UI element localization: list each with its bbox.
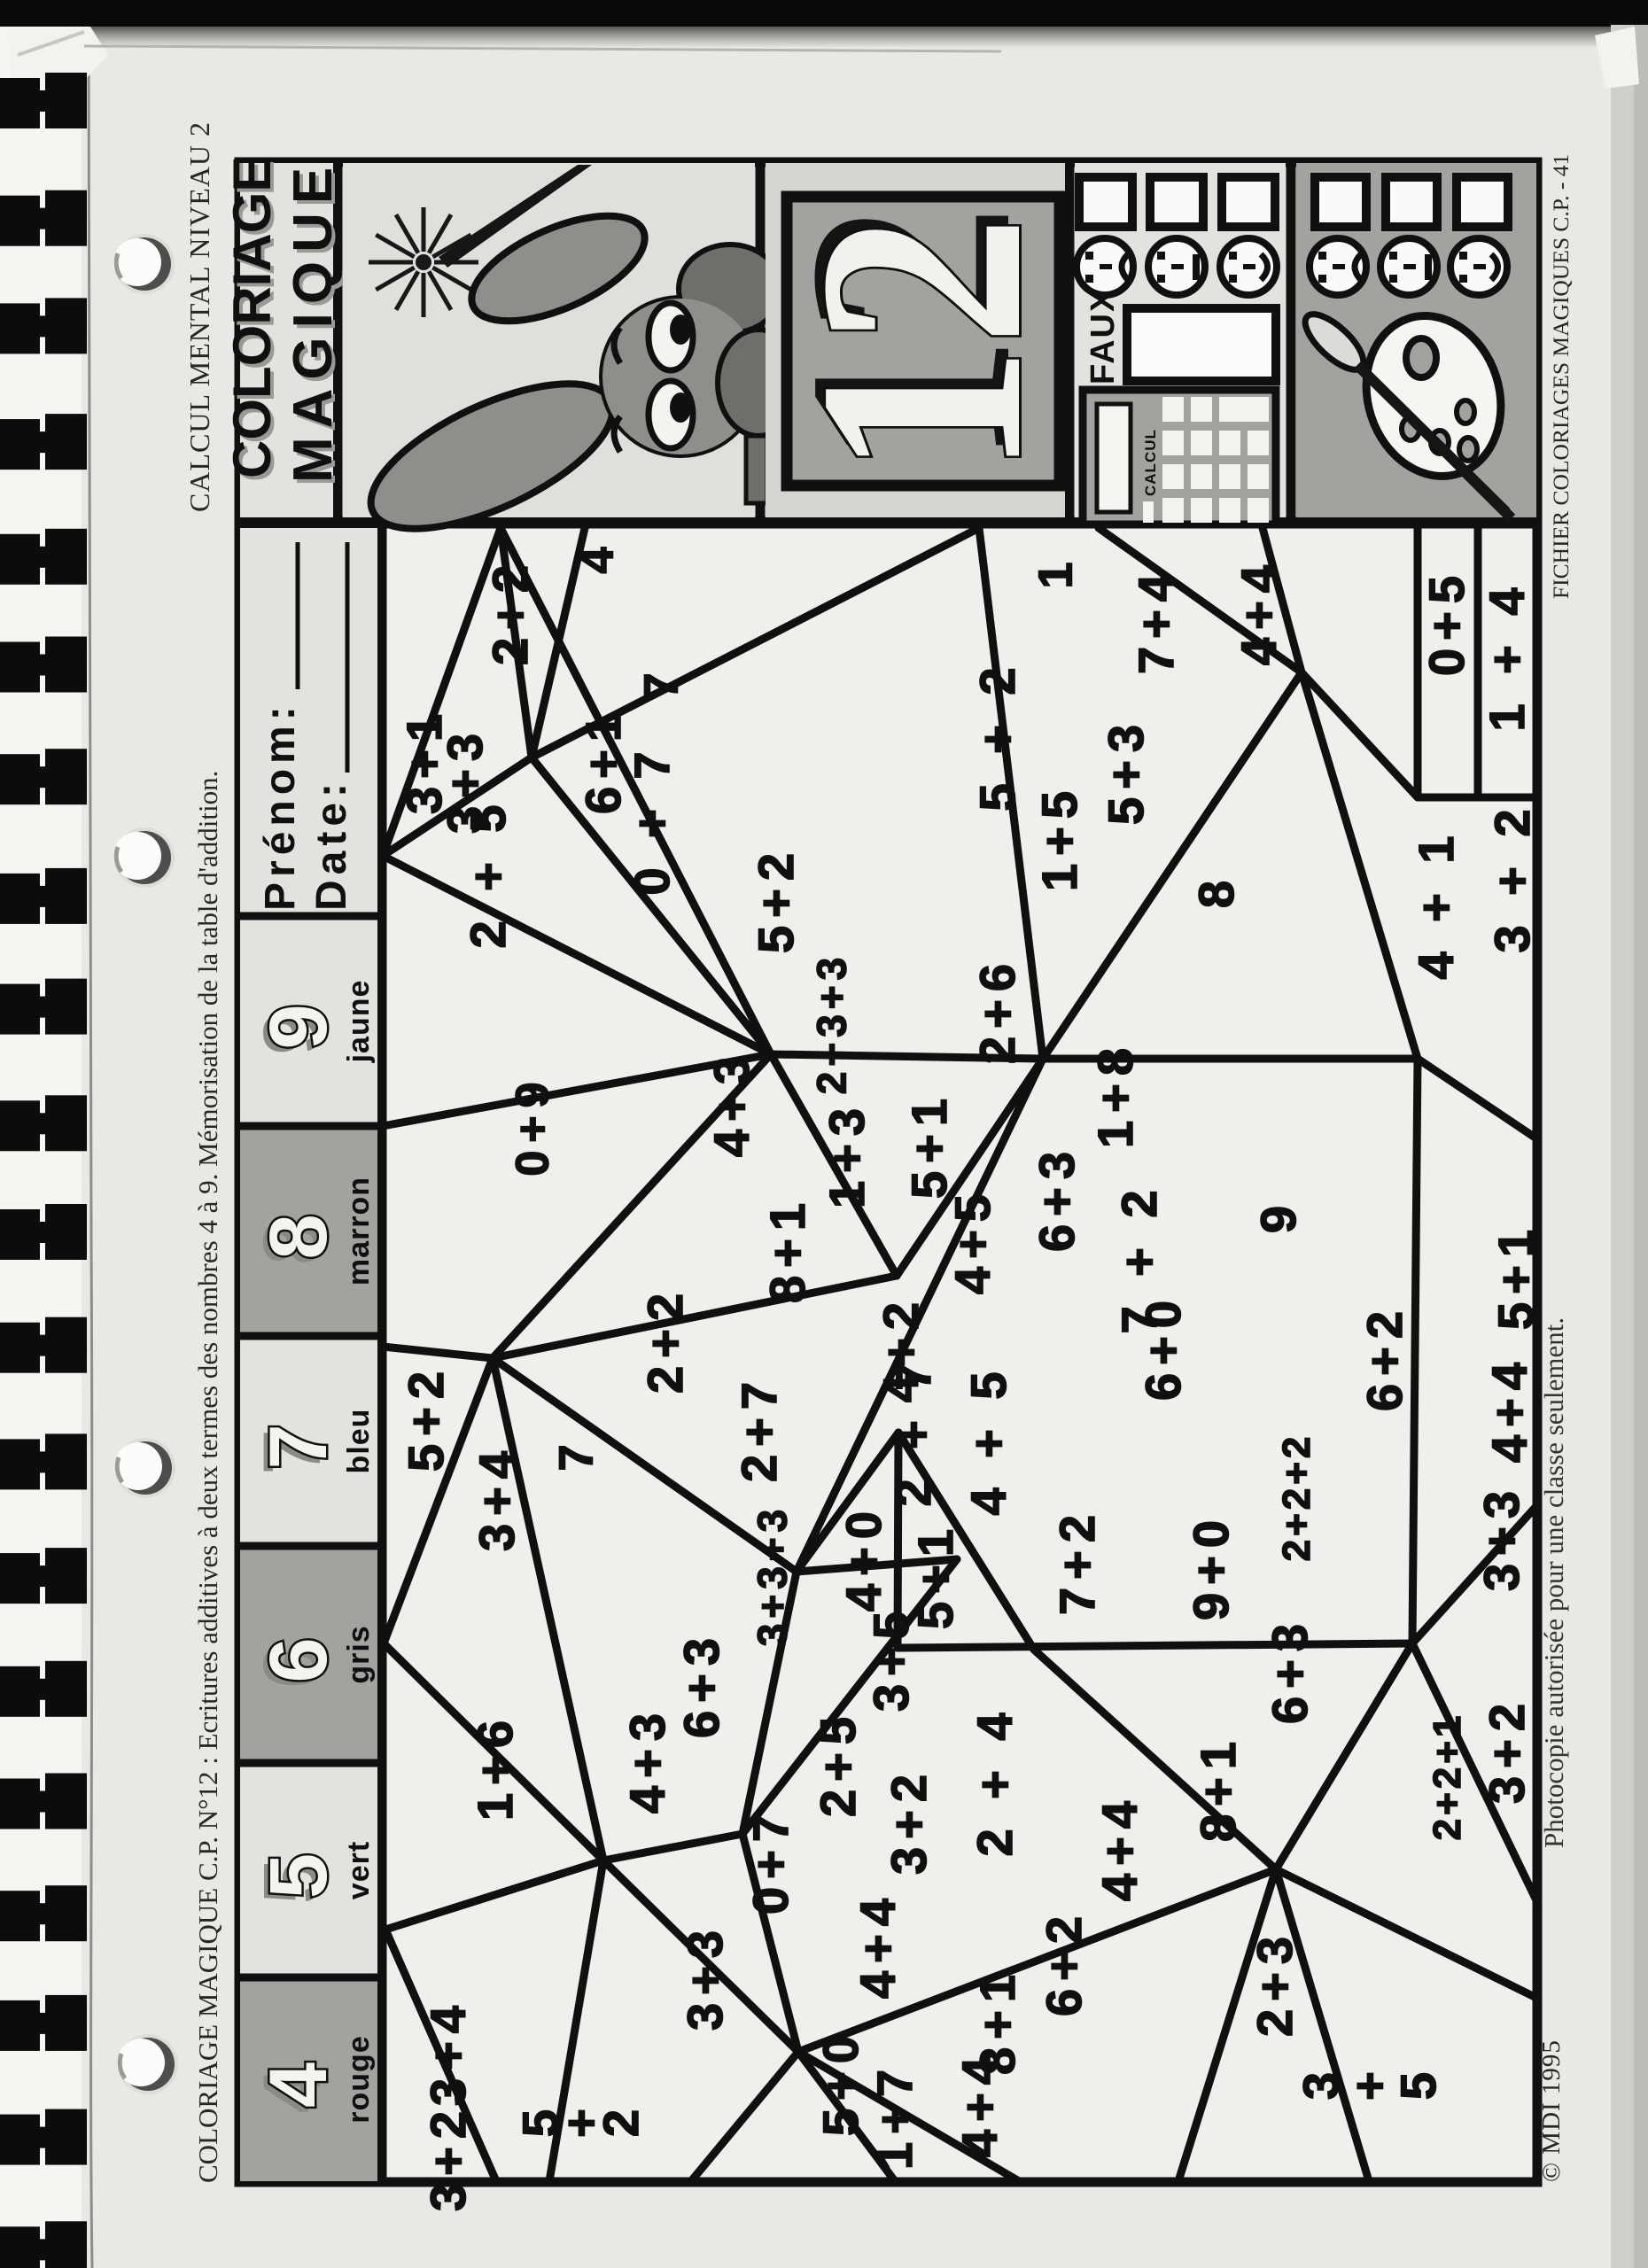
svg-text:CALCUL: CALCUL	[1142, 429, 1159, 496]
svg-text:9+0: 9+0	[1183, 1512, 1239, 1620]
svg-text:5+2: 5+2	[398, 1363, 454, 1472]
svg-text:7: 7	[634, 664, 688, 699]
svg-text:3 + 2: 3 + 2	[1484, 801, 1540, 952]
svg-text:COLORIAGE MAGIQUE C.P. N°12 :: COLORIAGE MAGIQUE C.P. N°12 : Ecritures …	[192, 771, 223, 2183]
svg-text:5+0: 5+0	[812, 2028, 868, 2136]
svg-text:8+1: 8+1	[969, 1967, 1025, 2075]
svg-text:6+3: 6+3	[673, 1630, 729, 1738]
svg-text:COLORIAGE: COLORIAGE	[222, 157, 282, 478]
svg-text:2+2+2: 2+2+2	[1275, 1433, 1318, 1562]
svg-text:3+2: 3+2	[881, 1767, 937, 1875]
svg-text:6+3: 6+3	[1029, 1144, 1084, 1252]
svg-text:1+8: 1+8	[1087, 1040, 1143, 1148]
svg-text:2+3: 2+3	[1247, 1929, 1302, 2037]
svg-text:12: 12	[759, 215, 1083, 477]
svg-text:2 + 4: 2 + 4	[967, 1705, 1022, 1856]
svg-text:3+3: 3+3	[1473, 1483, 1529, 1591]
svg-text:rouge: rouge	[342, 2035, 376, 2123]
svg-text:3+2: 3+2	[1479, 1696, 1535, 1804]
svg-text:4+4: 4+4	[1092, 1793, 1147, 1901]
svg-text:8+1: 8+1	[1190, 1734, 1246, 1842]
svg-text:3: 3	[1293, 2064, 1349, 2100]
svg-text:2+7: 2+7	[731, 1374, 787, 1482]
svg-text:4+4: 4+4	[1231, 557, 1287, 665]
svg-text:FAUX: FAUX	[1084, 288, 1122, 384]
svg-text:9: 9	[1250, 1198, 1306, 1233]
svg-text:5+1: 5+1	[901, 1091, 957, 1199]
svg-text:MAGIQUE: MAGIQUE	[283, 159, 344, 483]
svg-text:2 + 5: 2 + 5	[460, 796, 516, 948]
svg-text:4+2: 4+2	[873, 1294, 929, 1402]
svg-text:4: 4	[253, 2062, 344, 2108]
svg-text:CALCUL MENTAL NIVEAU 2: CALCUL MENTAL NIVEAU 2	[183, 121, 215, 512]
svg-text:4: 4	[570, 539, 623, 573]
svg-text:7+4: 7+4	[1128, 566, 1184, 674]
svg-text:6+2: 6+2	[1356, 1303, 1412, 1411]
svg-text:4 + 1: 4 + 1	[1408, 827, 1464, 979]
svg-text:© MDI 1995: © MDI 1995	[1537, 2039, 1566, 2182]
svg-text:8: 8	[1188, 873, 1244, 908]
svg-text:1+3: 1+3	[819, 1100, 875, 1208]
svg-text:7: 7	[253, 1424, 344, 1469]
svg-text:4+5: 4+5	[944, 1186, 1000, 1294]
svg-text:Prénom:: Prénom:	[257, 701, 304, 911]
svg-text:2+3+3: 2+3+3	[809, 952, 855, 1094]
svg-text:1+5: 1+5	[1031, 783, 1087, 891]
svg-text:gris: gris	[342, 1625, 376, 1683]
svg-text:3+3: 3+3	[677, 1922, 733, 2031]
svg-text:+: +	[1341, 2063, 1397, 2101]
svg-text:1+7: 1+7	[867, 2062, 922, 2170]
svg-text:3+2: 3+2	[420, 2103, 476, 2211]
svg-text:5+3: 5+3	[1098, 717, 1154, 825]
svg-text:0+9: 0+9	[508, 1074, 559, 1176]
svg-text:3+4: 3+4	[469, 1443, 525, 1551]
svg-text:4+4: 4+4	[1481, 1355, 1537, 1463]
svg-text:6+1: 6+1	[575, 706, 631, 814]
svg-text:1 + 4: 1 + 4	[1479, 579, 1535, 731]
svg-text:3+4: 3+4	[420, 1998, 476, 2106]
svg-text:5+1: 5+1	[907, 1521, 963, 1629]
svg-text:6+3: 6+3	[1262, 1616, 1318, 1724]
svg-text:Photocopie autorisée pour une: Photocopie autorisée pour une classe seu…	[1538, 1317, 1569, 1848]
svg-text:jaune: jaune	[342, 980, 376, 1064]
svg-text:8: 8	[253, 1214, 344, 1259]
svg-text:9: 9	[253, 1004, 344, 1049]
svg-text:8+1: 8+1	[759, 1195, 815, 1303]
svg-text:7: 7	[549, 1436, 602, 1471]
svg-text:4+3: 4+3	[619, 1705, 675, 1814]
svg-text:2+6: 2+6	[969, 956, 1025, 1064]
svg-text:Date:: Date:	[308, 778, 355, 911]
svg-text:5: 5	[253, 1853, 344, 1899]
svg-text:2+2+1: 2+2+1	[1426, 1713, 1469, 1841]
svg-text:bleu: bleu	[342, 1409, 376, 1474]
svg-text:4+0: 4+0	[836, 1503, 891, 1612]
svg-text:4+4: 4+4	[850, 1891, 906, 1999]
svg-text:2: 2	[593, 2101, 649, 2137]
svg-text:5+1: 5+1	[1488, 1222, 1543, 1330]
svg-text:vert: vert	[342, 1841, 376, 1899]
svg-text:2+2: 2+2	[637, 1285, 693, 1394]
svg-text:2+2: 2+2	[482, 557, 538, 665]
svg-text:7+2: 7+2	[1049, 1507, 1105, 1615]
svg-text:0+5: 0+5	[1419, 568, 1474, 676]
svg-text:0 + 7: 0 + 7	[624, 743, 680, 895]
svg-text:3+3+3: 3+3+3	[750, 1504, 796, 1646]
svg-text:5: 5	[1390, 2064, 1446, 2100]
svg-text:5+2: 5+2	[748, 845, 804, 953]
svg-text:6+2: 6+2	[1036, 1908, 1092, 2016]
svg-text:0+7: 0+7	[742, 1806, 798, 1915]
svg-text:2+5: 2+5	[810, 1709, 866, 1817]
svg-text:6+0: 6+0	[1135, 1293, 1191, 1401]
svg-text:4+3: 4+3	[704, 1049, 759, 1157]
svg-text:FICHIER COLORIAGES MAGIQUES C.: FICHIER COLORIAGES MAGIQUES C.P. - 41	[1548, 154, 1574, 599]
svg-text:1: 1	[1029, 554, 1082, 588]
svg-text:marron: marron	[342, 1177, 376, 1285]
svg-text:1+6: 1+6	[467, 1713, 523, 1821]
svg-text:4 + 5: 4 + 5	[960, 1363, 1016, 1515]
svg-text:5 + 2: 5 + 2	[969, 659, 1025, 811]
svg-text:6: 6	[253, 1637, 344, 1682]
